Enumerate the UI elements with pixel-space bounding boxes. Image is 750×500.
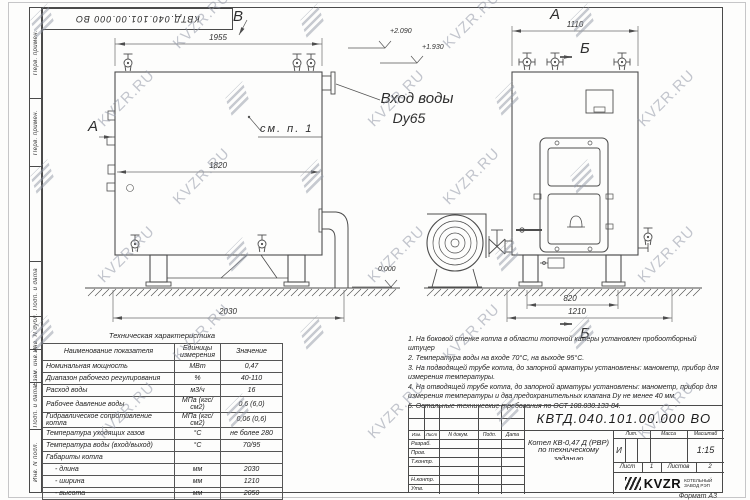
product-name-line1: Котел КВ-0,47 Д (РВР) — [524, 436, 613, 448]
tb-role-blank — [409, 466, 439, 475]
spec-cell: 0,6 (6,0) — [221, 397, 283, 413]
spec-row: Температура воды (вход/выход)°С70/95 — [43, 440, 283, 452]
spec-cell: 0,06 (0,6) — [221, 412, 283, 428]
tb-scale-value: 1:15 — [687, 438, 724, 462]
spec-cell: Габариты котла — [43, 452, 175, 464]
dim-1955: 1955 — [209, 33, 227, 42]
spec-cell — [221, 452, 283, 464]
peephole — [570, 216, 582, 227]
valve-icon — [614, 53, 630, 70]
dim-1110: 1110 — [567, 20, 584, 29]
spec-cell: 2050 — [221, 488, 283, 500]
spec-cell: °С — [175, 440, 221, 452]
water-inlet-label: Вход воды — [381, 90, 454, 107]
spec-table-header: Наименование показателя Единицы измерени… — [43, 344, 283, 361]
tb-mass-label: Масса — [650, 430, 687, 438]
spec-row: Номинальная мощностьМВт0,47 — [43, 361, 283, 373]
tb-scale-label: Масштаб — [687, 430, 724, 438]
front-view — [512, 72, 648, 286]
kvzr-logo-text: KVZR — [644, 476, 681, 491]
tb-role-razrab: Разраб. — [409, 439, 439, 448]
product-name-line2: по техническому заданию — [524, 448, 613, 460]
spec-row: Температура уходящих газов°Сне более 280 — [43, 428, 283, 440]
tb-lit-value: И — [613, 438, 625, 462]
spec-col-units: Единицы измерения — [175, 344, 221, 361]
kvzr-logo-caption: КОТЕЛЬНЫЙ ЗАВОД РЭП — [684, 478, 712, 488]
elevation-2090: +2.090 — [390, 28, 412, 35]
tb-sheets-label: Листов — [661, 462, 696, 472]
section-label-b-top: Б — [580, 40, 590, 57]
dim-2030: 2030 — [219, 307, 237, 316]
spec-col-name: Наименование показателя — [43, 344, 175, 361]
tb-sheets-value: 2 — [696, 462, 724, 472]
view-label-a-right: А — [550, 6, 560, 23]
drawing-sheet: Перв. примен. Перв. примен. Подп. и дата… — [0, 0, 750, 500]
control-panel — [586, 90, 613, 113]
note-item: 2. Температура воды на входе 70°С, на вы… — [408, 355, 720, 364]
valve-icon — [307, 54, 316, 71]
valve-icon — [519, 53, 535, 70]
tb-sheet-label: Лист — [613, 462, 642, 472]
spec-row: - ширинамм1210 — [43, 476, 283, 488]
spec-row: - длинамм2030 — [43, 464, 283, 476]
valve-icon — [131, 235, 140, 252]
spec-cell — [175, 452, 221, 464]
spec-cell: Диапазон рабочего регулирования — [43, 373, 175, 385]
spec-row: Диапазон рабочего регулирования%40-110 — [43, 373, 283, 385]
water-inlet-size: Dy65 — [393, 110, 426, 126]
ground-lines — [85, 288, 702, 296]
spec-cell: 0,47 — [221, 361, 283, 373]
dim-820: 820 — [563, 294, 576, 303]
view-label-a-left: А — [88, 118, 98, 135]
spec-cell: мм — [175, 464, 221, 476]
tb-col-ndoc: N докум. — [439, 430, 478, 439]
spec-cell: мм — [175, 476, 221, 488]
tb-sheet-value: 1 — [642, 462, 661, 472]
note-item: 3. На подводящей трубе котла, до запорно… — [408, 365, 720, 383]
title-block: КВТД.040.101.00.000 ВО Изм. Лист N докум… — [408, 405, 723, 493]
spec-table-body: Номинальная мощностьМВт0,47Диапазон рабо… — [43, 361, 283, 500]
note-item: 4. На отводящей трубе котла, до запорной… — [408, 384, 720, 402]
spec-cell: Температура воды (вход/выход) — [43, 440, 175, 452]
kvzr-logo-icon — [625, 477, 641, 490]
tb-col-izm: Изм. — [409, 430, 424, 439]
spec-cell: Номинальная мощность — [43, 361, 175, 373]
spec-cell: 1210 — [221, 476, 283, 488]
spec-row: - высотамм2050 — [43, 488, 283, 500]
tb-role-nkontr: Н.контр. — [409, 475, 439, 484]
spec-table-title: Техническая характеристика — [42, 331, 282, 340]
spec-cell: 2030 — [221, 464, 283, 476]
tb-role-prov: Пров. — [409, 448, 439, 457]
valve-icon — [293, 54, 302, 71]
spec-cell: МПа (кгс/см2) — [175, 397, 221, 413]
tb-col-podp: Подп. — [478, 430, 501, 439]
spec-cell: не более 280 — [221, 428, 283, 440]
spec-cell: - ширина — [43, 476, 175, 488]
notes-list: 1. На боковой стенке котла в области топ… — [408, 336, 720, 413]
view-label-b: В — [233, 8, 243, 25]
dim-1210: 1210 — [568, 307, 586, 316]
see-note-label: см. п. 1 — [260, 123, 313, 135]
spec-row: Рабочее давление водыМПа (кгс/см2)0,6 (6… — [43, 397, 283, 413]
spec-row: Расход водым3/ч16 — [43, 385, 283, 397]
spec-table: Наименование показателя Единицы измерени… — [42, 343, 283, 500]
doc-number: КВТД.040.101.00.000 ВО — [524, 406, 724, 430]
spec-cell: - высота — [43, 488, 175, 500]
spec-cell: 70/95 — [221, 440, 283, 452]
spec-row: Габариты котла — [43, 452, 283, 464]
spec-cell: Расход воды — [43, 385, 175, 397]
valve-icon — [547, 53, 563, 70]
spec-cell: МВт — [175, 361, 221, 373]
valve-icon — [258, 235, 267, 252]
water-inlet-flange — [322, 76, 331, 90]
spec-cell: % — [175, 373, 221, 385]
spec-cell: мм — [175, 488, 221, 500]
spec-cell: 16 — [221, 385, 283, 397]
elevation-mark-icon — [411, 56, 423, 63]
tb-role-tkontr: Т.контр. — [409, 457, 439, 466]
elevation-mark-icon — [379, 41, 391, 48]
elevation-0000: 0.000 — [378, 266, 396, 273]
tb-role-utv: Утв. — [409, 484, 439, 494]
side-view — [107, 72, 348, 288]
valve-icon — [644, 228, 653, 245]
note-item: 1. На боковой стенке котла в области топ… — [408, 336, 720, 354]
dim-1820: 1820 — [209, 161, 227, 170]
tb-col-data: Дата — [501, 430, 524, 439]
spec-cell: м3/ч — [175, 385, 221, 397]
manufacturer-logo: KVZR КОТЕЛЬНЫЙ ЗАВОД РЭП — [613, 472, 724, 494]
furnace-door — [540, 138, 608, 252]
spec-col-value: Значение — [221, 344, 283, 361]
spec-cell: °С — [175, 428, 221, 440]
inlet-valve-icon — [489, 230, 512, 254]
spec-cell: 40-110 — [221, 373, 283, 385]
elevation-1930: +1.930 — [422, 44, 444, 51]
tb-col-list: Лист — [424, 430, 439, 439]
spec-row: Гидравлическое сопротивление котлаМПа (к… — [43, 412, 283, 428]
tb-lit-label: Лит. — [613, 430, 650, 438]
spec-cell: Рабочее давление воды — [43, 397, 175, 413]
format-label: Формат А3 — [563, 493, 720, 500]
fan-blower-icon — [427, 214, 489, 287]
elevation-mark-icon — [385, 280, 397, 287]
spec-cell: МПа (кгс/см2) — [175, 412, 221, 428]
valve-icon — [124, 54, 133, 71]
spec-cell: Гидравлическое сопротивление котла — [43, 412, 175, 428]
spec-cell: Температура уходящих газов — [43, 428, 175, 440]
spec-cell: - длина — [43, 464, 175, 476]
